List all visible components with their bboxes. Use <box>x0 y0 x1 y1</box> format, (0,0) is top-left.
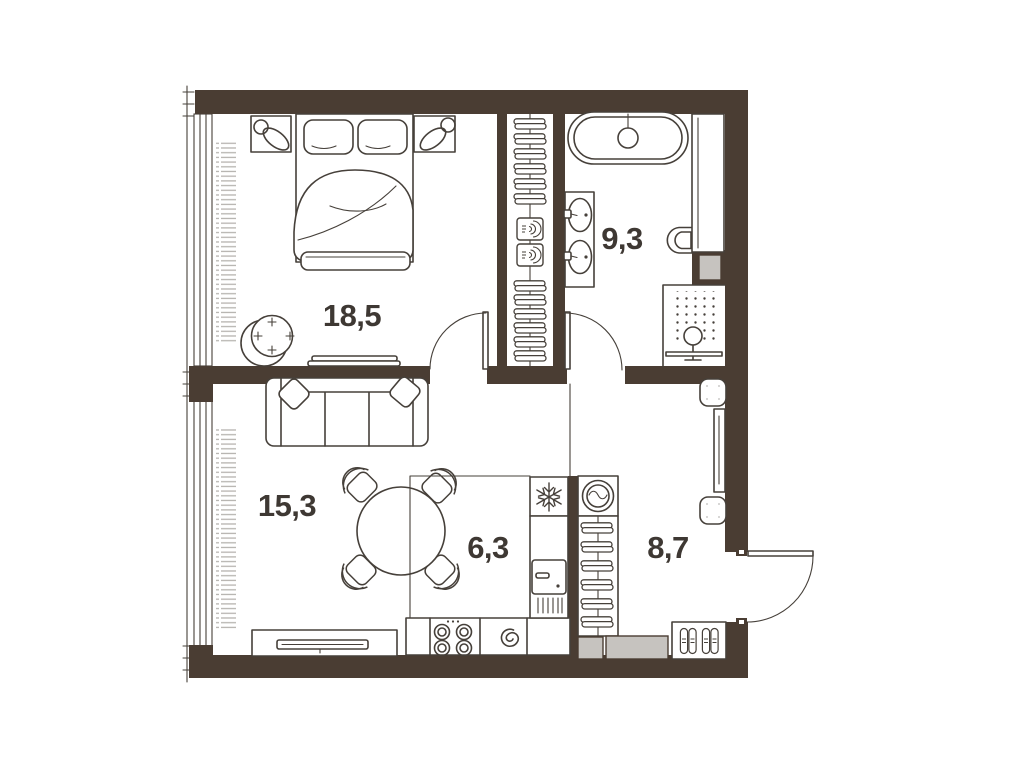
round-dining-table <box>357 487 445 575</box>
handle-icon <box>536 573 549 578</box>
door-leaf <box>483 312 488 369</box>
drain-icon <box>618 128 638 148</box>
entrance-door <box>736 548 813 626</box>
tap-icon <box>564 252 571 260</box>
tv-stand <box>308 356 400 366</box>
room-bathroom: 9,3 <box>564 112 725 366</box>
appliance-column <box>530 516 568 618</box>
tv-console <box>252 630 397 656</box>
pillow-icon <box>358 120 407 154</box>
floor-plan-page: 18,5 <box>0 0 1024 768</box>
basket-icon <box>517 244 543 266</box>
floor-plan-canvas: 18,5 <box>0 0 1024 768</box>
duct-shaft-small <box>578 637 603 659</box>
built-in-closet <box>514 114 546 366</box>
washing-machine <box>578 476 618 516</box>
bathroom-area-label: 9,3 <box>601 221 643 256</box>
pillow-icon <box>304 120 353 154</box>
bedroom-window <box>194 114 212 366</box>
sofa <box>266 375 428 446</box>
armchair <box>241 316 294 367</box>
radiator-icon <box>216 428 236 630</box>
base-counter <box>406 618 570 655</box>
door-swing-arc <box>747 556 813 622</box>
wall-right-upper <box>725 90 748 552</box>
wall-left-bottom-junction <box>189 645 213 678</box>
hallway-area-label: 8,7 <box>647 530 689 565</box>
kitchen-area-label: 6,3 <box>467 530 509 565</box>
shoe-rack <box>672 622 726 659</box>
wall-closet-left <box>497 114 507 384</box>
nightstand-left <box>251 116 292 154</box>
room-living: 15,3 <box>216 375 467 656</box>
door-leaf <box>748 551 813 556</box>
room-hallway: 8,7 <box>570 379 813 659</box>
hanger-wardrobe <box>578 516 618 636</box>
shower <box>663 285 725 366</box>
bathroom-door <box>565 312 622 370</box>
shower-screen <box>666 352 722 356</box>
bathtub <box>568 112 688 164</box>
room-bedroom: 18,5 <box>216 114 455 366</box>
double-bed <box>294 114 413 270</box>
pouf-top <box>700 379 726 406</box>
bed-bench <box>301 252 410 270</box>
storage-column <box>692 114 724 252</box>
shower-head-icon <box>684 327 702 345</box>
fridge <box>530 477 568 516</box>
door-leaf <box>565 312 570 369</box>
blanket <box>294 170 413 262</box>
double-washbasin <box>564 192 594 287</box>
dining-set <box>334 460 466 596</box>
duct-shaft-large <box>606 636 668 659</box>
door-swing-arc <box>430 313 486 369</box>
tap-icon <box>564 210 571 218</box>
wall-closet-right <box>553 114 565 384</box>
living-window <box>194 400 212 655</box>
radiator-icon <box>216 140 236 344</box>
living-area-label: 15,3 <box>258 488 317 523</box>
mirror <box>714 409 725 492</box>
nightstand-right <box>414 116 455 154</box>
basket-icon <box>517 218 543 240</box>
wall-top <box>195 90 748 114</box>
duct-shaft <box>699 255 721 280</box>
bedroom-door <box>430 312 488 369</box>
bedroom-area-label: 18,5 <box>323 298 382 333</box>
door-swing-arc <box>565 313 622 370</box>
pouf-bottom <box>700 497 726 524</box>
